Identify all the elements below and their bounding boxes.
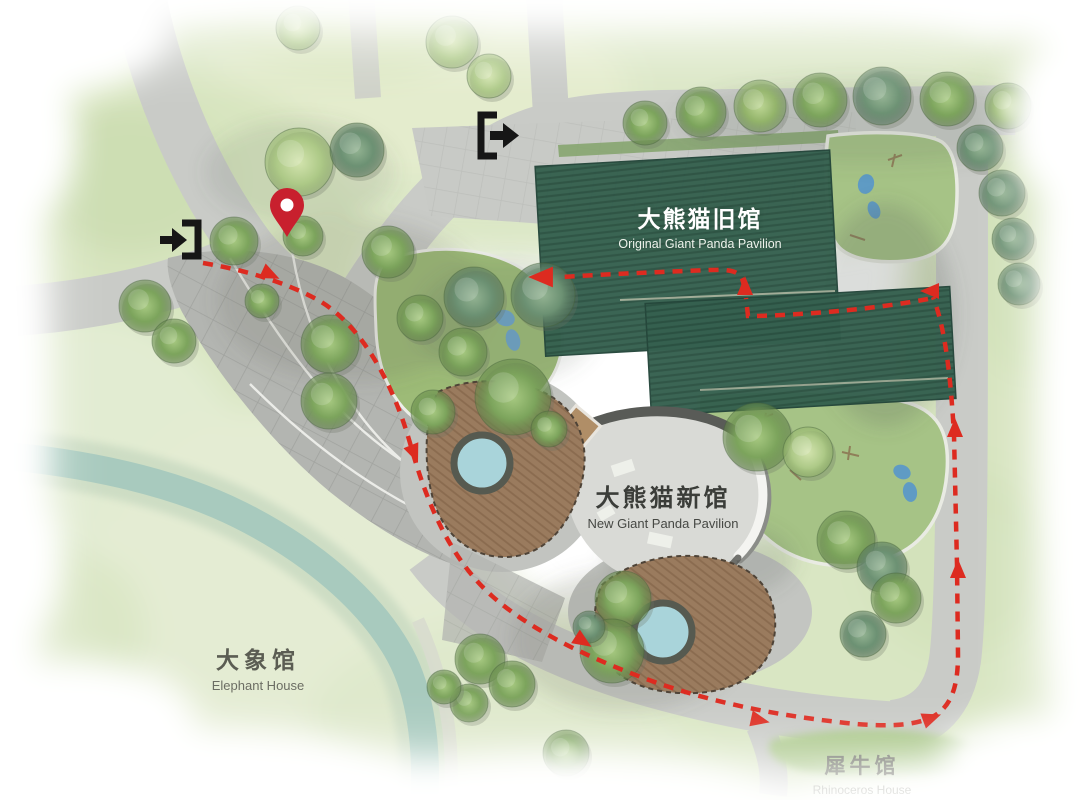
rhinoceros-house-name-zh: 犀牛馆 <box>813 750 912 780</box>
label-elephant-house: 大象馆 Elephant House <box>212 641 305 693</box>
elephant-house-name-zh: 大象馆 <box>212 641 305 675</box>
old-pavilion-name-en: Original Giant Panda Pavilion <box>618 237 781 251</box>
zoo-site-plan: 大熊猫旧馆 Original Giant Panda Pavilion 大熊猫新… <box>0 0 1080 800</box>
new-pavilion-name-zh: 大熊猫新馆 <box>587 478 738 513</box>
label-new-panda-pavilion: 大熊猫新馆 New Giant Panda Pavilion <box>587 478 738 531</box>
old-pavilion-name-zh: 大熊猫旧馆 <box>618 200 781 234</box>
rhinoceros-house-name-en: Rhinoceros House <box>813 783 912 797</box>
new-pavilion-name-en: New Giant Panda Pavilion <box>587 516 738 531</box>
label-rhinoceros-house: 犀牛馆 Rhinoceros House <box>813 750 912 797</box>
elephant-house-name-en: Elephant House <box>212 678 305 693</box>
site-plan-map-canvas <box>0 0 1080 800</box>
label-old-panda-pavilion: 大熊猫旧馆 Original Giant Panda Pavilion <box>618 200 781 251</box>
